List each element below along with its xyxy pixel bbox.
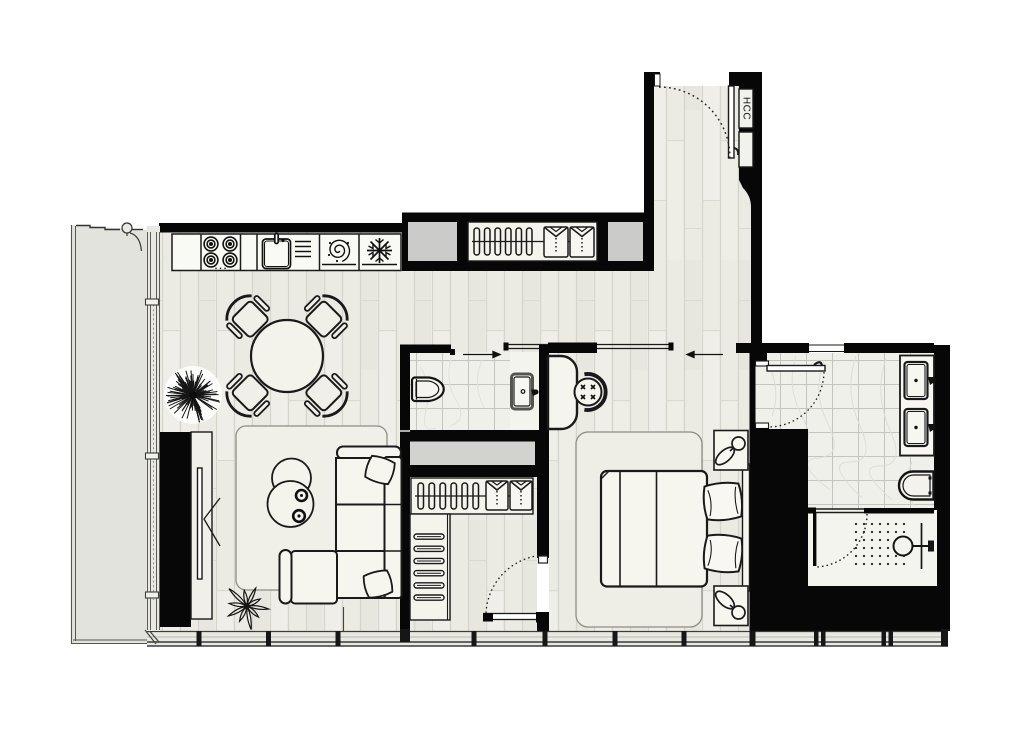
svg-text:HCC: HCC [740, 97, 751, 120]
